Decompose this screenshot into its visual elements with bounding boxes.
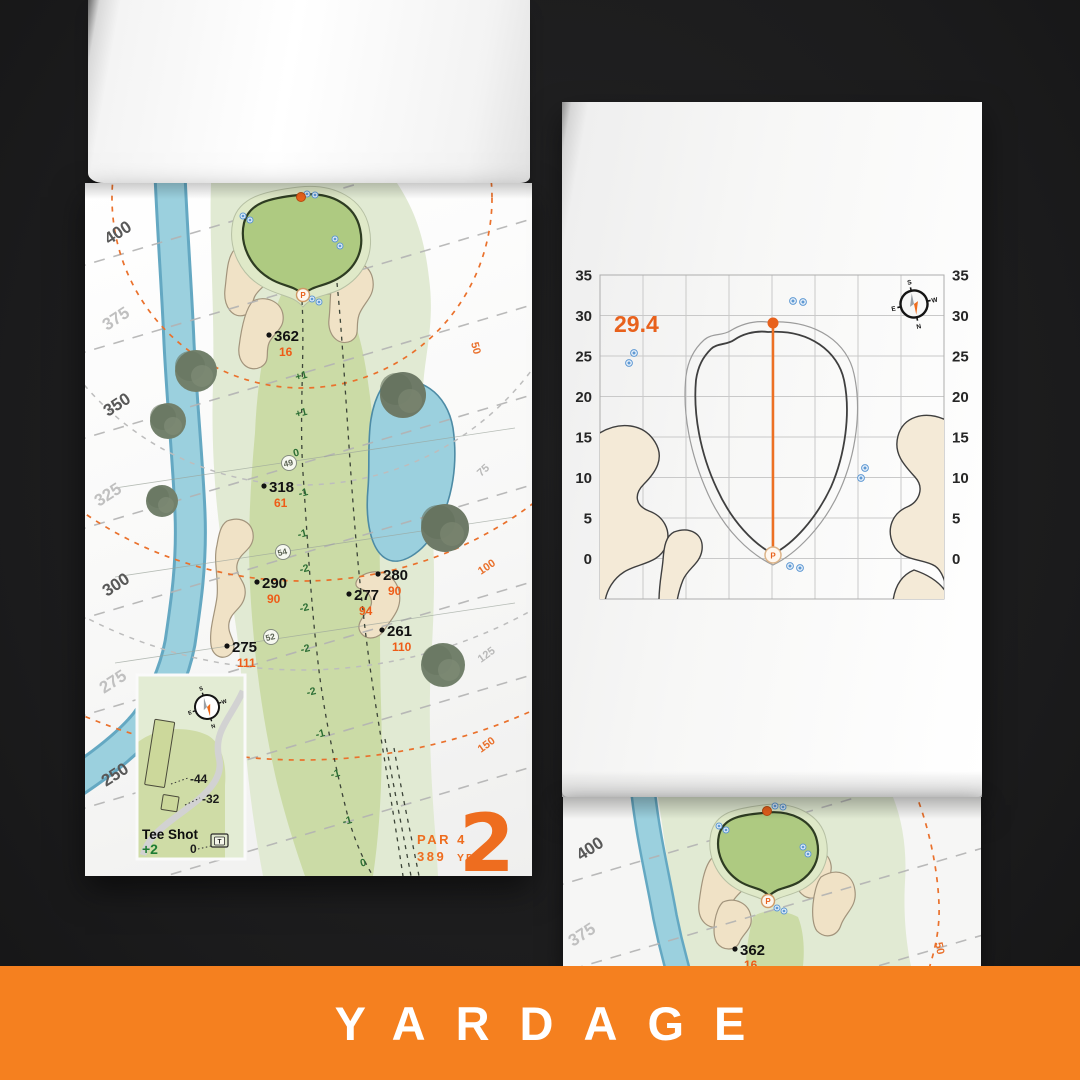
tick: 25 [575,349,592,366]
inset-title: Tee Shot [142,827,199,842]
marker-carry: 90 [388,584,402,598]
marker-carry: 94 [359,604,373,618]
scale-label: 275 [96,666,130,697]
tick: 20 [952,389,969,406]
axis-ticks-left: 35 30 25 20 15 10 5 0 [575,268,592,569]
compass-n: N [916,323,922,331]
tee-marker-letter: T [218,839,222,846]
hole-number: 2 [459,797,515,876]
arc-label: 100 [476,557,498,577]
marker-carry: 110 [392,640,412,654]
scale-label: 400 [573,833,607,864]
waypoint-52: 52 [264,630,279,645]
long-tee-label: -44 [190,772,208,786]
pin-position-marker: P [765,547,781,563]
tee-shot-inset: S N W E -44 -32 Tee Shot +2 0 T [137,675,245,859]
scale-label: 375 [565,919,599,950]
marker-carry: 111 [237,656,256,670]
waypoint-54: 54 [276,545,291,560]
compass-s: S [907,279,913,287]
hole-yardage-number: 389 [417,849,446,864]
pin-letter: P [770,552,776,561]
next-page-peek: P 362 16 400 375 50 [563,797,981,966]
tick: 15 [575,430,592,447]
pin-dot [763,807,772,816]
distance-arc [915,797,939,966]
tick: 0 [584,551,592,568]
tick: 0 [952,551,960,568]
scale-label: 350 [100,389,134,420]
zero-label: 0 [190,842,197,856]
tick: 30 [575,308,592,325]
hole-map-page: 49 54 52 +1 +1 0 -1 -1 -2 -2 -2 -2 -1 -1… [85,183,532,876]
arc-label: 75 [475,462,492,479]
marker-distance: 280 [383,567,408,584]
flipped-page-back [88,0,530,183]
tick: 5 [952,511,960,528]
tick: 10 [952,470,969,487]
scale-label: 300 [99,569,133,600]
marker-distance: 290 [262,575,287,592]
marker-distance: 362 [274,328,299,345]
marker-carry: 90 [267,592,281,606]
arc-labels: 50 75 100 125 150 [468,341,498,756]
pin-letter: P [300,291,306,300]
marker-distance: 261 [387,623,412,640]
scale-label: 400 [101,217,135,248]
marker-distance: 277 [354,587,379,604]
tick: 25 [952,349,969,366]
short-tee-label: -32 [202,792,220,806]
arc-label: 50 [468,341,483,356]
pin-letter: P [765,897,771,906]
scale-labels: 400 375 350 325 300 275 250 [91,217,135,790]
green-outline-inner [695,332,847,554]
yardage-banner: YARDAGE [0,966,1080,1080]
tick: 10 [575,470,592,487]
marker-carry: 16 [744,958,758,966]
depth-dot [768,318,779,329]
marker-distance: 318 [269,479,294,496]
pin-position-marker: P [762,895,775,908]
compass-icon: S N W E [886,274,944,335]
pin-position-marker: P [297,289,310,302]
arc-label: 150 [476,735,498,755]
tick: 5 [584,511,592,528]
marker-distance: 362 [740,942,765,959]
marker-distance: 275 [232,639,257,656]
arc-label: 50 [932,941,946,955]
scale-label: 325 [91,479,125,510]
green-chart: P 29.4 35 30 25 20 15 10 5 0 35 30 25 20… [562,102,982,797]
tee-marker-icon: T [211,834,228,847]
hole-map: 49 54 52 +1 +1 0 -1 -1 -2 -2 -2 -2 -1 -1… [85,183,532,876]
pin-dot [297,193,306,202]
axis-ticks-right: 35 30 25 20 15 10 5 0 [952,268,969,569]
marker-carry: 16 [279,345,293,359]
tick: 30 [952,308,969,325]
tick: 20 [575,389,592,406]
compass-e: E [891,305,897,313]
banner-title: YARDAGE [305,996,776,1051]
compass-w: W [931,296,939,304]
green-chart-page: P 29.4 35 30 25 20 15 10 5 0 35 30 25 20… [562,102,982,797]
green-outline-outer [685,322,858,565]
marker-carry: 61 [274,496,288,510]
tick: 35 [952,268,969,285]
green-depth-value: 29.4 [614,311,659,337]
scale-label: 375 [99,303,133,334]
arc-label: 125 [476,645,498,665]
hole-map-partial: P 362 16 400 375 50 [563,797,981,966]
handicap-value: +2 [142,841,158,857]
tick: 15 [952,430,969,447]
tick: 35 [575,268,592,285]
